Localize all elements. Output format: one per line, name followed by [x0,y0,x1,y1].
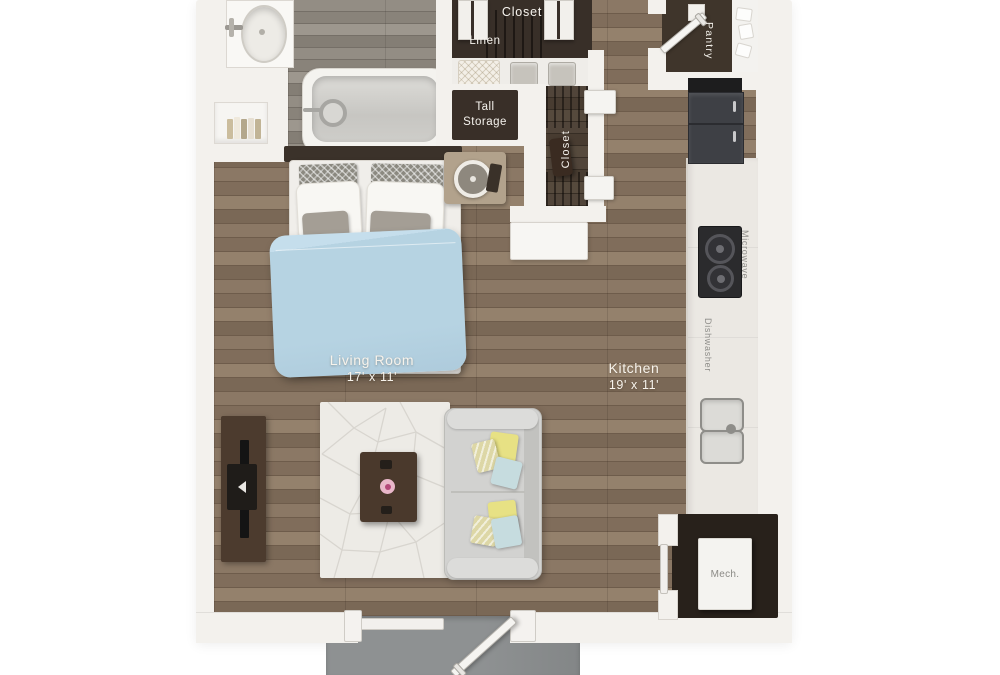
sofa-cushion-seam [451,491,525,493]
refrigerator [688,92,744,164]
kitchen-sink-basin [700,430,744,464]
sink-faucet-handle-icon [229,18,234,37]
bathtub-faucet-stem [303,108,321,112]
kitchen-sink-basin [700,398,744,432]
kitchen-dimensions: 19' x 11' [572,378,696,392]
mech-door-post [658,590,678,620]
storage-basket [510,62,538,86]
tall-storage-label: Tall Storage [456,100,514,130]
sofa-pillow-blue [490,456,523,490]
living-room-name: Living Room [302,352,442,368]
pantry-item [735,7,753,22]
coffee-table [360,452,417,522]
dishwasher-label: Dishwasher [703,318,713,372]
sink-drain [259,29,265,35]
entry-door-post [510,610,536,642]
pantry-label: Pantry [703,22,715,60]
wall-shelf [584,90,616,114]
wall-below-closet [510,206,606,222]
living-room-dimensions: 17' x 11' [302,370,442,384]
bathtub-faucet-icon [319,99,347,127]
refrigerator-door-line [689,123,743,125]
floor-plan: Closet Linen Tall Storage Closet Pantry [0,0,1000,675]
sofa-armrest [447,409,538,429]
mech-unit: Mech. [698,538,752,610]
kitchen-name: Kitchen [572,360,696,376]
wall-niche-shelf [214,102,268,144]
pantry-shelves [732,0,758,72]
dresser [510,222,588,260]
pantry-door-post [648,0,666,14]
pantry-item [738,23,754,40]
wall-closet-left [524,84,546,218]
arrow-icon [238,481,246,493]
sofa [444,408,542,580]
bathroom-vanity [226,0,294,68]
nightstand [444,152,506,204]
stove-cooktop [698,226,742,298]
bottom-wall-left [196,612,358,643]
refrigerator-handle-icon [733,101,736,112]
refrigerator-handle-icon [733,131,736,142]
book [234,117,240,139]
sofa-pillow-blue [491,515,523,549]
table-decor [380,460,392,469]
closet-top-label: Closet [462,5,582,19]
book [241,119,247,139]
table-decor [381,506,392,514]
sink-faucet-icon [225,25,243,30]
tv-console [221,416,266,562]
door-handle-icon [452,662,466,675]
living-room-label: Living Room 17' x 11' [302,352,442,384]
woven-basket [458,60,500,86]
closet-side-label: Closet [560,130,572,168]
storage-basket [548,62,576,86]
burner-icon [705,234,735,264]
sofa-backrest [524,415,539,573]
sofa-armrest [447,558,538,578]
clock-icon [454,160,492,198]
door-threshold [358,618,444,630]
kitchen-label: Kitchen 19' x 11' [572,360,696,392]
flower-icon [380,479,395,494]
mech-label: Mech. [711,569,740,580]
microwave-label: Microwave [740,230,750,279]
counter-dark-section [688,78,742,92]
book [255,119,261,139]
bathtub [302,68,450,154]
linen-label: Linen [452,35,518,47]
tall-storage: Tall Storage [452,90,518,140]
pantry-item [735,42,753,58]
book [248,118,254,139]
mech-door [660,544,668,594]
entry-door-post [344,610,362,642]
burner-icon [707,265,734,292]
mech-door-post [658,514,678,546]
book [227,119,233,139]
kitchen-faucet-icon [726,424,736,434]
wall-shelf [584,176,614,200]
kitchen-counter [686,158,758,520]
media-box [227,464,257,510]
